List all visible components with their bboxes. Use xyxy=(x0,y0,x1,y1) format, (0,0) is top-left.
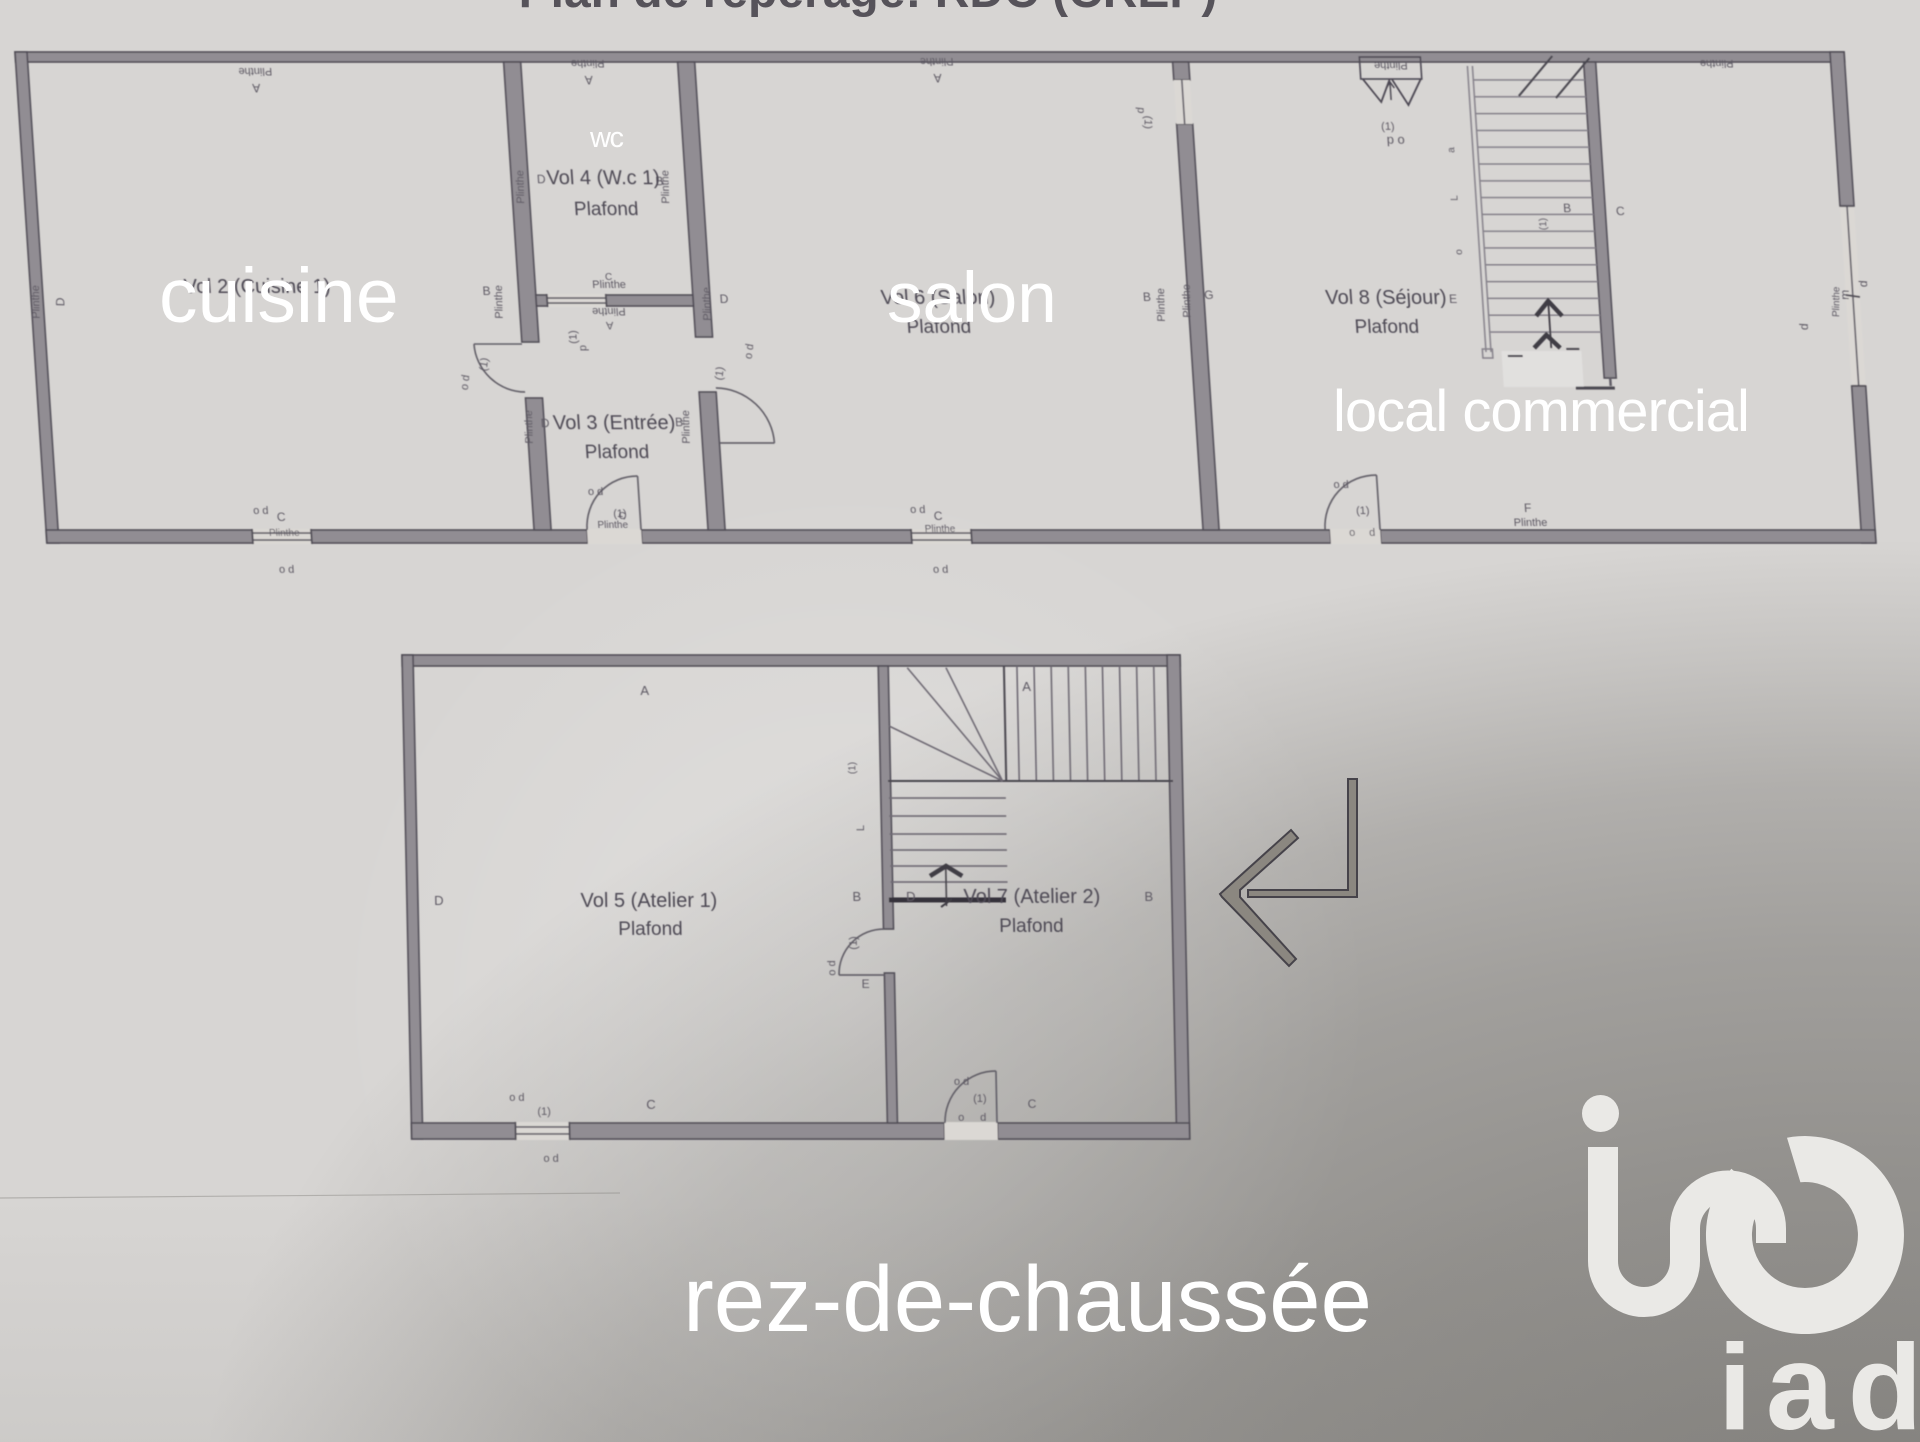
svg-text:D: D xyxy=(906,889,916,904)
svg-text:D: D xyxy=(536,172,546,186)
svg-text:(1): (1) xyxy=(537,1106,551,1118)
svg-text:D: D xyxy=(540,416,550,430)
svg-text:D: D xyxy=(719,292,729,306)
svg-text:B: B xyxy=(1563,201,1572,215)
svg-text:Plinthe: Plinthe xyxy=(659,170,672,204)
svg-text:Plafond: Plafond xyxy=(573,199,639,220)
svg-text:Plan de repérage: RDC (CREP): Plan de repérage: RDC (CREP) xyxy=(519,0,1218,18)
svg-text:(1): (1) xyxy=(848,936,860,949)
svg-text:B: B xyxy=(852,889,861,904)
svg-text:G: G xyxy=(1204,288,1214,302)
svg-text:Plafond: Plafond xyxy=(1354,317,1420,338)
svg-text:d: d xyxy=(1797,323,1811,331)
svg-text:Vol 5 (Atelier 1): Vol 5 (Atelier 1) xyxy=(580,890,717,912)
svg-text:A: A xyxy=(933,71,942,85)
svg-text:d: d xyxy=(1369,527,1376,539)
svg-text:(1): (1) xyxy=(973,1093,987,1105)
svg-text:o d: o d xyxy=(279,564,295,576)
svg-text:E: E xyxy=(861,977,869,991)
svg-text:o d: o d xyxy=(588,486,604,498)
svg-text:C: C xyxy=(933,509,943,523)
svg-text:L: L xyxy=(855,825,867,831)
svg-text:Plinthe: Plinthe xyxy=(1700,57,1734,69)
svg-text:Plafond: Plafond xyxy=(999,916,1064,937)
svg-text:salon: salon xyxy=(887,259,1057,338)
svg-text:D: D xyxy=(53,297,67,306)
svg-text:Plinthe: Plinthe xyxy=(701,287,714,321)
svg-text:E: E xyxy=(1449,292,1458,306)
svg-text:Plinthe: Plinthe xyxy=(493,285,506,319)
svg-text:(1): (1) xyxy=(713,366,726,381)
svg-text:rez-de-chaussée: rez-de-chaussée xyxy=(683,1247,1372,1351)
svg-text:B: B xyxy=(1142,290,1151,304)
svg-text:Plinthe: Plinthe xyxy=(30,285,43,319)
svg-text:L: L xyxy=(1449,195,1460,201)
svg-text:d: d xyxy=(980,1112,986,1124)
svg-text:F: F xyxy=(1524,501,1532,515)
svg-text:Plinthe: Plinthe xyxy=(514,170,527,204)
svg-text:o d: o d xyxy=(954,1076,970,1088)
svg-text:o: o xyxy=(958,1112,964,1124)
svg-text:Plinthe: Plinthe xyxy=(592,305,626,317)
svg-text:p o: p o xyxy=(1386,132,1405,147)
svg-text:Plafond: Plafond xyxy=(618,919,683,940)
svg-text:o: o xyxy=(1454,249,1465,255)
svg-text:C: C xyxy=(276,510,286,524)
svg-text:o d: o d xyxy=(1333,479,1349,491)
svg-text:Plinthe: Plinthe xyxy=(269,528,301,539)
svg-text:o d: o d xyxy=(826,960,838,975)
svg-text:Plinthe: Plinthe xyxy=(924,524,956,535)
svg-text:o d: o d xyxy=(910,504,926,516)
svg-text:iad: iad xyxy=(1718,1319,1920,1442)
svg-text:Plinthe: Plinthe xyxy=(523,410,536,444)
svg-text:Plinthe: Plinthe xyxy=(1374,59,1408,71)
svg-text:A: A xyxy=(605,319,614,331)
svg-text:p: p xyxy=(1135,107,1147,114)
svg-text:o d: o d xyxy=(543,1153,559,1165)
svg-text:Plinthe: Plinthe xyxy=(680,410,693,444)
svg-text:o d: o d xyxy=(459,374,473,391)
svg-text:o: o xyxy=(1349,527,1356,539)
svg-text:D: D xyxy=(434,893,444,908)
svg-text:B: B xyxy=(482,284,491,298)
svg-text:(1): (1) xyxy=(847,762,858,774)
svg-text:A: A xyxy=(584,73,593,87)
svg-text:Plinthe: Plinthe xyxy=(1513,517,1547,529)
svg-text:(1): (1) xyxy=(1538,218,1550,230)
svg-text:Vol 3 (Entrée): Vol 3 (Entrée) xyxy=(552,412,676,434)
svg-text:Plinthe: Plinthe xyxy=(1155,288,1168,322)
svg-text:cuisine: cuisine xyxy=(159,253,399,339)
svg-text:B: B xyxy=(1144,889,1153,904)
svg-text:a: a xyxy=(1446,147,1457,153)
svg-text:C: C xyxy=(1028,1097,1037,1111)
svg-text:C: C xyxy=(605,272,613,283)
svg-text:Vol 4 (W.c 1): Vol 4 (W.c 1) xyxy=(546,167,661,189)
svg-text:Plinthe: Plinthe xyxy=(1181,284,1194,318)
svg-text:o d: o d xyxy=(743,343,757,360)
svg-text:A: A xyxy=(252,81,261,95)
svg-text:C: C xyxy=(646,1097,656,1112)
svg-text:wc: wc xyxy=(589,122,623,154)
svg-text:(1): (1) xyxy=(1141,115,1154,130)
svg-text:Plinthe: Plinthe xyxy=(919,55,953,67)
svg-text:C: C xyxy=(1616,204,1626,218)
svg-text:o d: o d xyxy=(253,505,269,517)
svg-text:o d: o d xyxy=(509,1092,525,1104)
svg-text:(1): (1) xyxy=(567,330,580,343)
svg-text:(1): (1) xyxy=(1356,505,1370,517)
svg-text:p: p xyxy=(577,345,589,351)
svg-text:Plinthe: Plinthe xyxy=(238,65,272,77)
svg-text:C: C xyxy=(618,511,626,522)
svg-text:A: A xyxy=(1022,679,1031,694)
svg-text:o d: o d xyxy=(933,564,949,576)
svg-text:d: d xyxy=(1856,280,1870,288)
svg-text:(1): (1) xyxy=(478,357,491,372)
svg-text:Plafond: Plafond xyxy=(584,442,650,463)
svg-text:Vol 7 (Atelier 2): Vol 7 (Atelier 2) xyxy=(963,886,1100,908)
svg-text:local commercial: local commercial xyxy=(1333,379,1749,444)
svg-text:Plinthe: Plinthe xyxy=(1831,286,1842,318)
svg-text:Plinthe: Plinthe xyxy=(571,57,605,69)
svg-text:A: A xyxy=(640,683,649,698)
svg-text:Vol 8 (Séjour): Vol 8 (Séjour) xyxy=(1325,287,1448,309)
